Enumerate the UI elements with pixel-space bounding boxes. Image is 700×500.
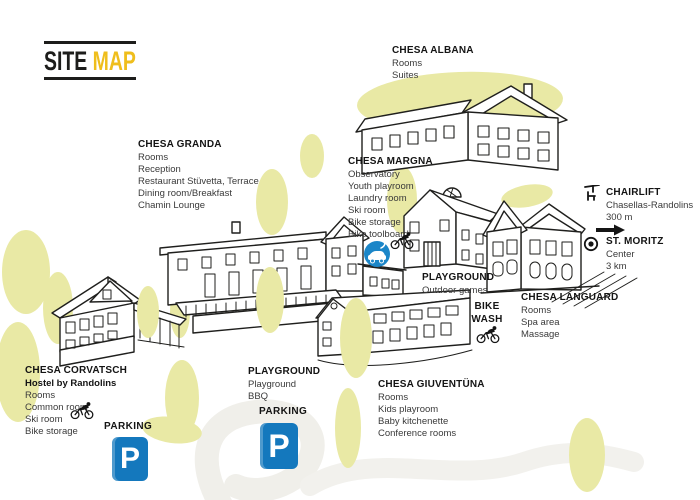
location-name: ST. MORITZ [606,236,664,248]
feature-line: Rooms [378,392,485,404]
location-name: CHESA MARGNA [348,156,433,168]
page-title: SITE MAP [44,41,136,80]
feature-line: Conference rooms [378,428,485,440]
feature-line: Outdoor games [422,285,494,297]
location-name: CHESA ALBANA [392,45,474,57]
feature-line: Restaurant Stüvetta, Terrace [138,176,259,188]
parking-sign: P [260,423,298,469]
location-name: CHESA CORVATSCH [25,365,127,377]
label-bike-wash: BIKE WASH [464,300,510,326]
feature-line: Kids playroom [378,404,485,416]
feature-line: Rooms [392,58,474,70]
feature-line: Observatory [348,169,433,181]
feature-line: Bike storage [348,217,433,229]
location-subtitle: Hostel by Randolins [25,378,127,390]
location-name: CHAIRLIFT [606,187,693,199]
cyclist-icon [390,231,414,250]
feature-line: Chasellas-Randolins [606,200,693,212]
feature-line: 300 m [606,212,693,224]
feature-line: Ski room [348,205,433,217]
label-chairlift: CHAIRLIFT Chasellas-Randolins 300 m [606,187,693,224]
parking-sign: P [112,437,148,481]
label-chesa-margna: CHESA MARGNA Observatory Youth playroom … [348,156,433,241]
site-map: SITE MAP CHESA ALBANA Rooms Suites CHESA… [0,0,700,500]
location-name: PLAYGROUND [422,272,494,284]
feature-line: Playground [248,379,320,391]
ev-charging-icon [364,241,390,267]
label-playground-upper: PLAYGROUND Outdoor games [422,272,494,297]
feature-line: Suites [392,70,474,82]
cyclist-icon [70,401,94,420]
direction-arrow-icon [596,224,626,236]
label-chesa-granda: CHESA GRANDA Rooms Reception Restaurant … [138,139,259,212]
location-name: CHESA LANGUARD [521,292,618,304]
feature-line: Laundry room [348,193,433,205]
feature-line: Spa area [521,317,618,329]
location-target-icon [583,236,599,252]
location-name: CHESA GRANDA [138,139,259,151]
label-chesa-languard: CHESA LANGUARD Rooms Spa area Massage [521,292,618,341]
label-chesa-giuventuna: CHESA GIUVENTÜNA Rooms Kids playroom Bab… [378,379,485,440]
page-title-text: SITE MAP [44,47,110,75]
feature-line: Chamin Lounge [138,200,259,212]
label-parking-central: PARKING [259,406,307,417]
cyclist-icon [476,325,500,344]
label-parking-west: PARKING [104,421,152,432]
feature-line: Rooms [521,305,618,317]
label-st-moritz: ST. MORITZ Center 3 km [606,236,664,273]
chesa-corvatsch-building [52,277,186,366]
title-word-map: MAP [93,46,136,76]
label-playground-lower: PLAYGROUND Playground BBQ [248,366,320,403]
chairlift-icon [584,185,600,205]
feature-line: Youth playroom [348,181,433,193]
feature-line: Dining room/Breakfast [138,188,259,200]
feature-line: Baby kitchenette [378,416,485,428]
feature-line: Reception [138,164,259,176]
chesa-giuventuna-building [316,290,472,365]
feature-line: BBQ [248,391,320,403]
parking-sign-letter: P [120,442,140,476]
bike-wash-line: BIKE [464,300,510,313]
feature-line: Center [606,249,664,261]
feature-line: Massage [521,329,618,341]
parking-sign-letter: P [268,428,289,465]
feature-line: Rooms [138,152,259,164]
label-chesa-albana: CHESA ALBANA Rooms Suites [392,45,474,82]
location-name: CHESA GIUVENTÜNA [378,379,485,391]
title-word-site: SITE [44,46,87,76]
feature-line: 3 km [606,261,664,273]
location-name: PLAYGROUND [248,366,320,378]
